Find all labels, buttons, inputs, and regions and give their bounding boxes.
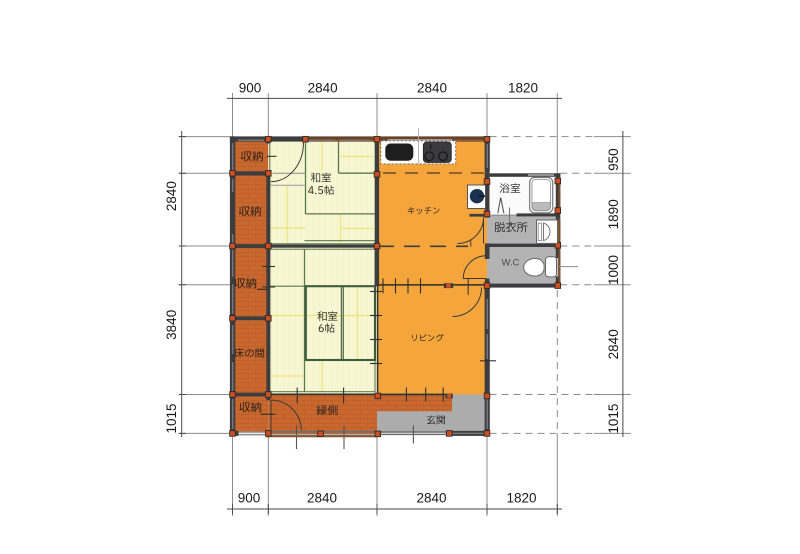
svg-text:1890: 1890 — [606, 199, 621, 229]
svg-text:2840: 2840 — [164, 181, 179, 211]
svg-text:2840: 2840 — [307, 491, 337, 506]
svg-text:3840: 3840 — [164, 310, 179, 340]
svg-text:1015: 1015 — [164, 403, 179, 433]
svg-text:1820: 1820 — [508, 81, 538, 96]
svg-text:900: 900 — [239, 81, 262, 96]
svg-text:1015: 1015 — [606, 404, 621, 434]
svg-text:2840: 2840 — [417, 81, 447, 96]
svg-text:2840: 2840 — [308, 81, 338, 96]
svg-text:1000: 1000 — [606, 255, 621, 285]
svg-text:1820: 1820 — [506, 491, 536, 506]
svg-text:2840: 2840 — [416, 491, 446, 506]
svg-text:950: 950 — [606, 148, 621, 171]
svg-text:2840: 2840 — [606, 329, 621, 359]
svg-text:W.C: W.C — [502, 257, 520, 268]
svg-text:900: 900 — [238, 491, 261, 506]
